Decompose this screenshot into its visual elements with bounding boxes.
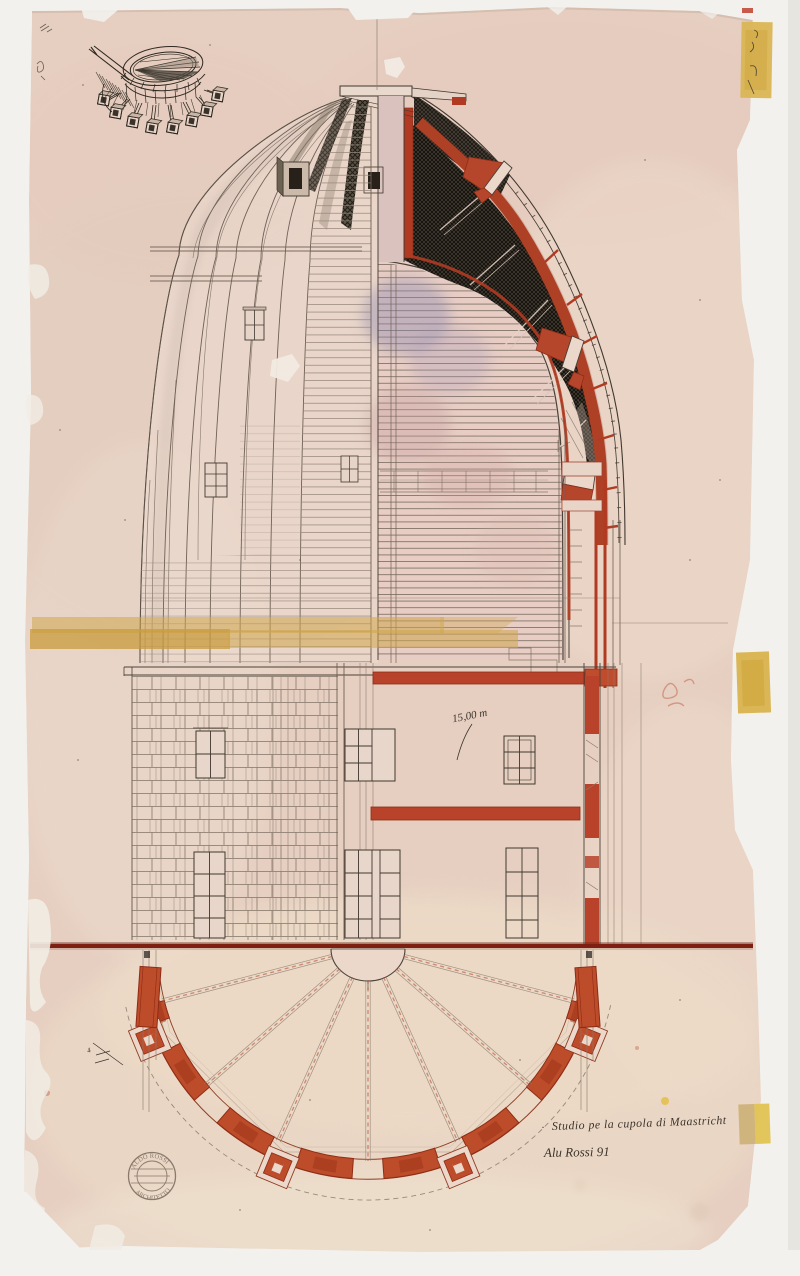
- svg-text:.: .: [542, 1120, 545, 1131]
- svg-text:Alu Rossi 91: Alu Rossi 91: [543, 1144, 610, 1160]
